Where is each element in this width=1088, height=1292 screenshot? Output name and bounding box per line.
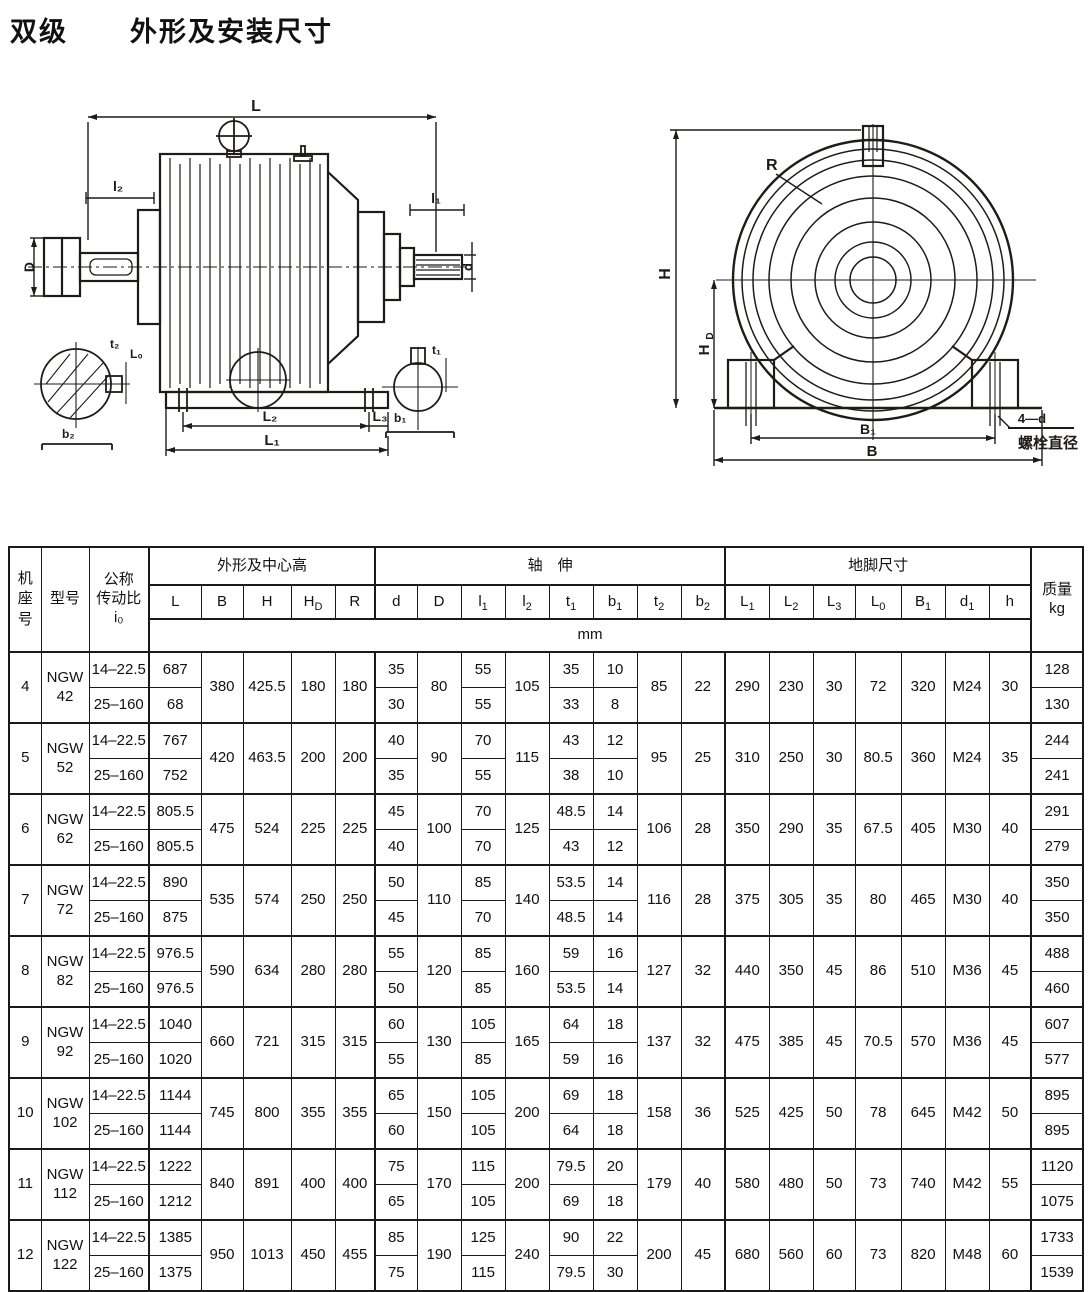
front-view-drawing: R H H D B₁ B 4—d 螺栓直径 [618, 108, 1078, 480]
cell-ratio: 25–160 [89, 1043, 149, 1079]
cell-b1: 8 [593, 688, 637, 724]
header-frame-no: 机座号 [9, 547, 41, 652]
cell-l2: 125 [505, 794, 549, 865]
cell-L: 1020 [149, 1043, 201, 1079]
dim-B1-label: B₁ [860, 421, 876, 437]
cell-t1: 59 [549, 936, 593, 972]
cell-model: NGW122 [41, 1220, 89, 1291]
cell-HD: 400 [291, 1149, 335, 1220]
cell-frame-no: 6 [9, 794, 41, 865]
cell-b1: 16 [593, 936, 637, 972]
col-L3: L3 [813, 585, 855, 619]
dim-HD-label-main: H [696, 345, 713, 356]
cell-L2: 560 [769, 1220, 813, 1291]
cell-H: 721 [243, 1007, 291, 1078]
cell-l2: 200 [505, 1078, 549, 1149]
cell-D: 110 [417, 865, 461, 936]
col-h: h [989, 585, 1031, 619]
dim-L0-label: L₀ [130, 347, 143, 361]
cell-L2: 350 [769, 936, 813, 1007]
cell-l1: 115 [461, 1149, 505, 1185]
cell-model: NGW102 [41, 1078, 89, 1149]
cell-h: 30 [989, 652, 1031, 723]
cell-b1: 16 [593, 1043, 637, 1079]
cell-b2: 40 [681, 1149, 725, 1220]
cell-t2: 158 [637, 1078, 681, 1149]
cell-b1: 14 [593, 901, 637, 937]
cell-H: 425.5 [243, 652, 291, 723]
cell-B: 590 [201, 936, 243, 1007]
cell-L: 890 [149, 865, 201, 901]
cell-mass: 895 [1031, 1114, 1083, 1150]
cell-t1: 53.5 [549, 972, 593, 1008]
cell-model: NGW82 [41, 936, 89, 1007]
cell-L0: 67.5 [855, 794, 901, 865]
cell-t2: 85 [637, 652, 681, 723]
cell-l1: 70 [461, 901, 505, 937]
cell-d: 50 [375, 865, 417, 901]
cell-l1: 105 [461, 1114, 505, 1150]
key-section-low-speed: t₂ b₂ [34, 337, 130, 450]
cell-ratio: 25–160 [89, 830, 149, 866]
dim-HD-label-sub: D [705, 332, 716, 339]
cell-mass: 350 [1031, 901, 1083, 937]
col-L0: L0 [855, 585, 901, 619]
cell-d: 60 [375, 1114, 417, 1150]
side-view-drawing: t₂ b₂ t₁ b₁ L D l₂ l₁ d L₀ L₂ L₃ L₁ [18, 92, 478, 472]
cell-L1: 290 [725, 652, 769, 723]
cell-L: 1375 [149, 1256, 201, 1292]
cell-l2: 105 [505, 652, 549, 723]
col-L2: L2 [769, 585, 813, 619]
cell-L3: 50 [813, 1149, 855, 1220]
cell-t1: 43 [549, 830, 593, 866]
cell-t1: 69 [549, 1185, 593, 1221]
cell-l1: 105 [461, 1078, 505, 1114]
key-section-high-speed: t₁ b₁ [382, 343, 458, 438]
cell-h: 60 [989, 1220, 1031, 1291]
cell-b1: 14 [593, 865, 637, 901]
cell-B1: 465 [901, 865, 945, 936]
cell-R: 400 [335, 1149, 375, 1220]
cell-B1: 740 [901, 1149, 945, 1220]
cell-t1: 69 [549, 1078, 593, 1114]
cell-b2: 32 [681, 936, 725, 1007]
cell-b2: 28 [681, 794, 725, 865]
cell-L: 1040 [149, 1007, 201, 1043]
cell-mass: 128 [1031, 652, 1083, 688]
cell-D: 130 [417, 1007, 461, 1078]
cell-l1: 70 [461, 830, 505, 866]
cell-mass: 1120 [1031, 1149, 1083, 1185]
cell-d1: M30 [945, 865, 989, 936]
cell-b2: 22 [681, 652, 725, 723]
cell-B1: 405 [901, 794, 945, 865]
cell-L3: 30 [813, 723, 855, 794]
cell-t2: 95 [637, 723, 681, 794]
cell-l1: 85 [461, 936, 505, 972]
cell-mass: 1539 [1031, 1256, 1083, 1292]
cell-d: 45 [375, 794, 417, 830]
cell-B: 380 [201, 652, 243, 723]
cell-B: 420 [201, 723, 243, 794]
cell-b2: 45 [681, 1220, 725, 1291]
cell-L2: 305 [769, 865, 813, 936]
cell-D: 170 [417, 1149, 461, 1220]
cell-d: 60 [375, 1007, 417, 1043]
unit-cell: mm [149, 619, 1031, 652]
cell-b1: 18 [593, 1114, 637, 1150]
cell-ratio: 14–22.5 [89, 1078, 149, 1114]
cell-H: 800 [243, 1078, 291, 1149]
cell-h: 55 [989, 1149, 1031, 1220]
cell-d: 45 [375, 901, 417, 937]
cell-t2: 127 [637, 936, 681, 1007]
key-t1-label: t₁ [432, 343, 441, 357]
cell-b1: 12 [593, 723, 637, 759]
cell-d1: M30 [945, 794, 989, 865]
cell-t1: 48.5 [549, 794, 593, 830]
cell-t1: 79.5 [549, 1256, 593, 1292]
dimension-table-container: 机座号 型号 公称 传动比 i₀ 外形及中心高 轴 伸 地脚尺寸 质量 kg L… [8, 546, 1084, 1292]
cell-b1: 14 [593, 972, 637, 1008]
cell-D: 120 [417, 936, 461, 1007]
cell-L2: 250 [769, 723, 813, 794]
cell-l2: 140 [505, 865, 549, 936]
col-l2: l2 [505, 585, 549, 619]
cell-D: 150 [417, 1078, 461, 1149]
col-R: R [335, 585, 375, 619]
cell-ratio: 25–160 [89, 1185, 149, 1221]
cell-d: 55 [375, 936, 417, 972]
cell-ratio: 25–160 [89, 901, 149, 937]
cell-L1: 680 [725, 1220, 769, 1291]
cell-d: 65 [375, 1185, 417, 1221]
header-group-outline: 外形及中心高 [149, 547, 375, 585]
cell-HD: 280 [291, 936, 335, 1007]
cell-ratio: 14–22.5 [89, 936, 149, 972]
cell-mass: 291 [1031, 794, 1083, 830]
cell-L0: 73 [855, 1149, 901, 1220]
cell-L0: 73 [855, 1220, 901, 1291]
cell-L0: 70.5 [855, 1007, 901, 1078]
cell-d: 85 [375, 1220, 417, 1256]
cell-L3: 35 [813, 865, 855, 936]
col-b1: b1 [593, 585, 637, 619]
dim-H-label: H [657, 268, 674, 280]
cell-t1: 59 [549, 1043, 593, 1079]
cell-mass: 1075 [1031, 1185, 1083, 1221]
cell-L1: 475 [725, 1007, 769, 1078]
cell-mass: 577 [1031, 1043, 1083, 1079]
cell-frame-no: 10 [9, 1078, 41, 1149]
cell-b1: 18 [593, 1007, 637, 1043]
cell-model: NGW52 [41, 723, 89, 794]
cell-L: 687 [149, 652, 201, 688]
cell-h: 45 [989, 1007, 1031, 1078]
cell-R: 200 [335, 723, 375, 794]
cell-l1: 85 [461, 972, 505, 1008]
cell-d1: M36 [945, 936, 989, 1007]
cell-L0: 72 [855, 652, 901, 723]
cell-L3: 30 [813, 652, 855, 723]
cell-B1: 570 [901, 1007, 945, 1078]
cell-B: 840 [201, 1149, 243, 1220]
cell-D: 100 [417, 794, 461, 865]
cell-b1: 18 [593, 1078, 637, 1114]
cell-ratio: 25–160 [89, 759, 149, 795]
cell-model: NGW72 [41, 865, 89, 936]
table-row: 5NGW5214–22.5767420463.52002004090701154… [9, 723, 1083, 759]
cell-D: 190 [417, 1220, 461, 1291]
cell-L1: 440 [725, 936, 769, 1007]
cell-L: 68 [149, 688, 201, 724]
cell-mass: 488 [1031, 936, 1083, 972]
cell-ratio: 25–160 [89, 1256, 149, 1292]
cell-l2: 115 [505, 723, 549, 794]
cell-l1: 105 [461, 1185, 505, 1221]
cell-h: 35 [989, 723, 1031, 794]
page-title-dimensions: 外形及安装尺寸 [130, 10, 333, 49]
cell-R: 225 [335, 794, 375, 865]
col-H: H [243, 585, 291, 619]
cell-l1: 55 [461, 759, 505, 795]
bolt-diameter-caption: 螺栓直径 [1018, 434, 1078, 452]
cell-d: 75 [375, 1149, 417, 1185]
header-mass: 质量 kg [1031, 547, 1083, 652]
cell-R: 355 [335, 1078, 375, 1149]
cell-l2: 200 [505, 1149, 549, 1220]
dim-B-label: B [867, 443, 878, 460]
cell-d: 40 [375, 830, 417, 866]
cell-b2: 36 [681, 1078, 725, 1149]
cell-frame-no: 7 [9, 865, 41, 936]
cell-d: 55 [375, 1043, 417, 1079]
col-B1: B1 [901, 585, 945, 619]
cell-HD: 450 [291, 1220, 335, 1291]
dim-l1-label: l₁ [431, 190, 441, 206]
cell-t2: 106 [637, 794, 681, 865]
cell-l1: 55 [461, 688, 505, 724]
cell-L: 976.5 [149, 972, 201, 1008]
col-B: B [201, 585, 243, 619]
header-group-shaft: 轴 伸 [375, 547, 725, 585]
col-L1: L1 [725, 585, 769, 619]
table-row: 4NGW4214–22.5687380425.51801803580551053… [9, 652, 1083, 688]
cell-d: 50 [375, 972, 417, 1008]
page-title-stage: 双级 [10, 10, 68, 49]
cell-B1: 510 [901, 936, 945, 1007]
col-D: D [417, 585, 461, 619]
cell-l1: 115 [461, 1256, 505, 1292]
cell-t1: 38 [549, 759, 593, 795]
dim-L1-label: L₁ [264, 432, 279, 449]
cell-l1: 85 [461, 1043, 505, 1079]
col-d: d [375, 585, 417, 619]
cell-t1: 43 [549, 723, 593, 759]
cell-L3: 45 [813, 1007, 855, 1078]
cell-d: 75 [375, 1256, 417, 1292]
cell-ratio: 14–22.5 [89, 723, 149, 759]
cell-L: 1212 [149, 1185, 201, 1221]
table-row: 8NGW8214–22.5976.55906342802805512085160… [9, 936, 1083, 972]
cell-mass: 241 [1031, 759, 1083, 795]
cell-L2: 230 [769, 652, 813, 723]
cell-d1: M36 [945, 1007, 989, 1078]
cell-frame-no: 11 [9, 1149, 41, 1220]
cell-B1: 320 [901, 652, 945, 723]
cell-L0: 86 [855, 936, 901, 1007]
cell-mass: 279 [1031, 830, 1083, 866]
table-body: 4NGW4214–22.5687380425.51801803580551053… [9, 652, 1083, 1291]
table-row: 9NGW9214–22.5104066072131531560130105165… [9, 1007, 1083, 1043]
cell-h: 50 [989, 1078, 1031, 1149]
cell-B1: 360 [901, 723, 945, 794]
cell-ratio: 14–22.5 [89, 1149, 149, 1185]
col-t2: t2 [637, 585, 681, 619]
cell-t2: 179 [637, 1149, 681, 1220]
cell-l1: 105 [461, 1007, 505, 1043]
dim-L-label: L [251, 98, 261, 115]
cell-L3: 50 [813, 1078, 855, 1149]
housing-fins [170, 158, 460, 388]
cell-d1: M24 [945, 723, 989, 794]
cell-R: 315 [335, 1007, 375, 1078]
dim-D-label: D [21, 262, 37, 272]
cell-ratio: 14–22.5 [89, 1220, 149, 1256]
cell-L1: 310 [725, 723, 769, 794]
cell-B: 535 [201, 865, 243, 936]
col-b2: b2 [681, 585, 725, 619]
cell-h: 40 [989, 865, 1031, 936]
cell-d: 35 [375, 759, 417, 795]
cell-HD: 250 [291, 865, 335, 936]
table-row: 10NGW10214–22.51144745800355355651501052… [9, 1078, 1083, 1114]
cell-L: 976.5 [149, 936, 201, 972]
cell-t1: 90 [549, 1220, 593, 1256]
header-ratio: 公称 传动比 i₀ [89, 547, 149, 652]
cell-ratio: 14–22.5 [89, 1007, 149, 1043]
cell-frame-no: 5 [9, 723, 41, 794]
cell-b2: 32 [681, 1007, 725, 1078]
cell-d1: M42 [945, 1078, 989, 1149]
cell-b1: 30 [593, 1256, 637, 1292]
reducer-body [44, 154, 462, 408]
cell-t2: 137 [637, 1007, 681, 1078]
cell-model: NGW62 [41, 794, 89, 865]
cell-L1: 350 [725, 794, 769, 865]
cell-t1: 33 [549, 688, 593, 724]
cell-HD: 200 [291, 723, 335, 794]
dim-R-label: R [766, 157, 778, 174]
cell-L: 805.5 [149, 830, 201, 866]
table-row: 6NGW6214–22.5805.54755242252254510070125… [9, 794, 1083, 830]
cell-L2: 290 [769, 794, 813, 865]
cell-frame-no: 8 [9, 936, 41, 1007]
cell-HD: 315 [291, 1007, 335, 1078]
cell-d1: M42 [945, 1149, 989, 1220]
cell-b2: 28 [681, 865, 725, 936]
cell-L: 1222 [149, 1149, 201, 1185]
cell-HD: 355 [291, 1078, 335, 1149]
dim-d-label: d [460, 263, 475, 271]
cell-HD: 225 [291, 794, 335, 865]
cell-l1: 70 [461, 794, 505, 830]
cell-d: 35 [375, 652, 417, 688]
cell-ratio: 25–160 [89, 688, 149, 724]
cell-ratio: 14–22.5 [89, 652, 149, 688]
cell-t1: 53.5 [549, 865, 593, 901]
cell-H: 1013 [243, 1220, 291, 1291]
column-letter-row: LBHHDRdDl1l2t1b1t2b2L1L2L3L0B1d1h [9, 585, 1083, 619]
key-t2-label: t₂ [110, 337, 119, 351]
cell-ratio: 14–22.5 [89, 794, 149, 830]
cell-model: NGW42 [41, 652, 89, 723]
cell-b1: 12 [593, 830, 637, 866]
cell-mass: 1733 [1031, 1220, 1083, 1256]
cell-L0: 80.5 [855, 723, 901, 794]
cell-R: 280 [335, 936, 375, 1007]
cell-L: 805.5 [149, 794, 201, 830]
col-t1: t1 [549, 585, 593, 619]
eyebolt-and-vent [179, 118, 373, 412]
cell-B: 660 [201, 1007, 243, 1078]
cell-L2: 385 [769, 1007, 813, 1078]
cell-b1: 10 [593, 652, 637, 688]
dimension-table: 机座号 型号 公称 传动比 i₀ 外形及中心高 轴 伸 地脚尺寸 质量 kg L… [8, 546, 1084, 1292]
cell-d1: M24 [945, 652, 989, 723]
table-row: 11NGW11214–22.51222840891400400751701152… [9, 1149, 1083, 1185]
bolt-count-label: 4—d [1018, 411, 1046, 426]
cell-ratio: 25–160 [89, 1114, 149, 1150]
cell-B: 745 [201, 1078, 243, 1149]
cell-H: 524 [243, 794, 291, 865]
cell-l2: 240 [505, 1220, 549, 1291]
cell-l1: 85 [461, 865, 505, 901]
cell-L0: 80 [855, 865, 901, 936]
key-b2-label: b₂ [62, 427, 75, 441]
table-row: 12NGW12214–22.51385950101345045585190125… [9, 1220, 1083, 1256]
cell-mass: 895 [1031, 1078, 1083, 1114]
cell-L1: 525 [725, 1078, 769, 1149]
cell-b1: 14 [593, 794, 637, 830]
cell-B1: 645 [901, 1078, 945, 1149]
cell-mass: 607 [1031, 1007, 1083, 1043]
cell-L1: 375 [725, 865, 769, 936]
cell-frame-no: 12 [9, 1220, 41, 1291]
housing-circles [716, 124, 1036, 440]
col-d1: d1 [945, 585, 989, 619]
cell-b2: 25 [681, 723, 725, 794]
key-b1-label: b₁ [394, 411, 406, 425]
cell-H: 463.5 [243, 723, 291, 794]
cell-L3: 60 [813, 1220, 855, 1291]
cell-d: 30 [375, 688, 417, 724]
cell-d: 65 [375, 1078, 417, 1114]
cell-model: NGW92 [41, 1007, 89, 1078]
dim-l2-label: l₂ [113, 178, 123, 194]
unit-row: mm [9, 619, 1083, 652]
group-header-row: 机座号 型号 公称 传动比 i₀ 外形及中心高 轴 伸 地脚尺寸 质量 kg [9, 547, 1083, 585]
cell-ratio: 14–22.5 [89, 865, 149, 901]
cell-t1: 35 [549, 652, 593, 688]
cell-B: 950 [201, 1220, 243, 1291]
cell-t2: 116 [637, 865, 681, 936]
cell-l1: 125 [461, 1220, 505, 1256]
cell-R: 455 [335, 1220, 375, 1291]
cell-b1: 18 [593, 1185, 637, 1221]
cell-R: 250 [335, 865, 375, 936]
